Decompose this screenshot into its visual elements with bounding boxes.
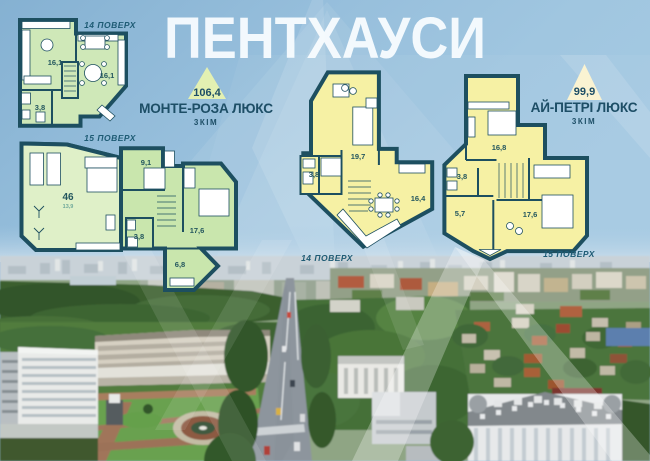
svg-text:9,1: 9,1	[141, 158, 151, 167]
svg-text:3,8: 3,8	[35, 103, 45, 112]
svg-text:3,8: 3,8	[309, 170, 319, 179]
svg-text:16,1: 16,1	[48, 58, 63, 67]
svg-text:3,8: 3,8	[457, 172, 467, 181]
svg-text:106,4: 106,4	[193, 87, 221, 99]
svg-text:6,8: 6,8	[175, 260, 185, 269]
svg-text:13,9: 13,9	[63, 204, 74, 210]
svg-text:3,8: 3,8	[134, 232, 144, 241]
svg-text:17,6: 17,6	[523, 210, 538, 219]
svg-text:16,1: 16,1	[100, 71, 115, 80]
svg-text:46: 46	[62, 192, 74, 203]
svg-text:19,7: 19,7	[351, 152, 366, 161]
svg-text:5,7: 5,7	[455, 209, 465, 218]
svg-text:99,9: 99,9	[574, 86, 595, 98]
svg-text:16,4: 16,4	[411, 194, 426, 203]
svg-text:17,6: 17,6	[190, 226, 205, 235]
svg-text:16,8: 16,8	[492, 143, 507, 152]
